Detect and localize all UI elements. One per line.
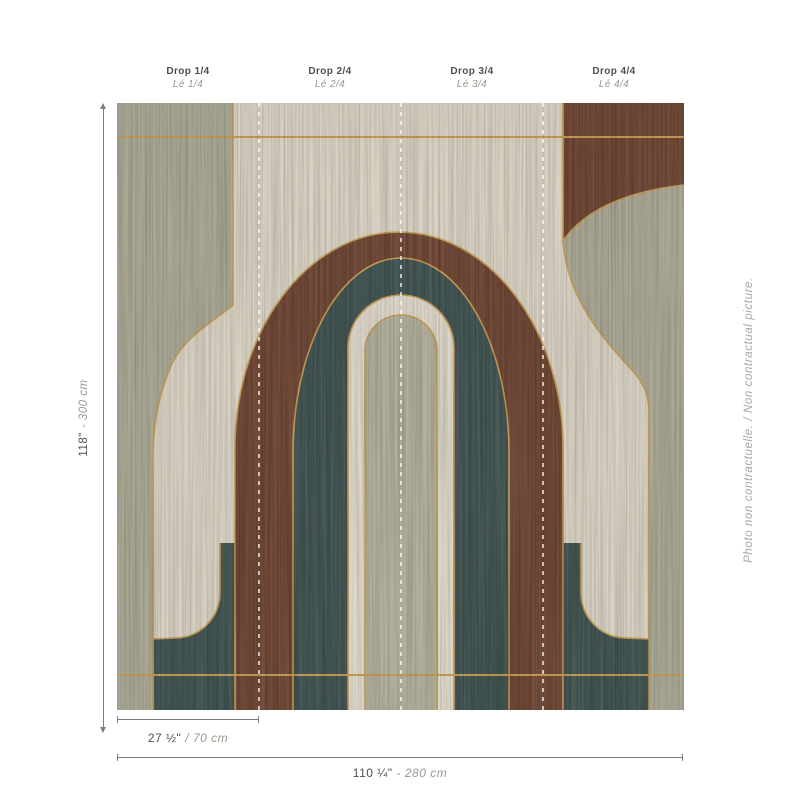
total-width-dimension-label: 110 ¼"- 280 cm: [280, 766, 520, 780]
drop-3-title: Drop 3/4: [402, 66, 542, 78]
drop-4-label: Drop 4/4 Lé 4/4: [544, 66, 684, 91]
total-width-value: 110 ¼": [353, 766, 393, 780]
product-dimension-diagram: Drop 1/4 Lé 1/4 Drop 2/4 Lé 2/4 Drop 3/4…: [0, 0, 800, 800]
drop-1-subtitle: Lé 1/4: [118, 79, 258, 91]
drop-width-dimension-line: [117, 719, 259, 720]
drop-width-value: 27 ½": [148, 731, 181, 745]
drop-width-dimension-label: 27 ½"/ 70 cm: [88, 731, 288, 745]
height-value: 118": [78, 432, 90, 456]
dimension-arrow-up-icon: [100, 103, 106, 109]
drop-4-subtitle: Lé 4/4: [544, 79, 684, 91]
drop-2-subtitle: Lé 2/4: [260, 79, 400, 91]
drop-1-label: Drop 1/4 Lé 1/4: [118, 66, 258, 91]
drop-4-title: Drop 4/4: [544, 66, 684, 78]
drop-3-label: Drop 3/4 Lé 3/4: [402, 66, 542, 91]
drop-1-title: Drop 1/4: [118, 66, 258, 78]
height-dimension-line: [103, 108, 104, 728]
non-contractual-watermark: Photo non contractuelle. / Non contractu…: [743, 200, 759, 640]
drop-2-label: Drop 2/4 Lé 2/4: [260, 66, 400, 91]
height-dimension-label: 118"- 300 cm: [78, 308, 94, 528]
drop-2-title: Drop 2/4: [260, 66, 400, 78]
wallpaper-mural-preview: [117, 103, 684, 710]
height-value-metric: - 300 cm: [78, 379, 90, 428]
drop-3-subtitle: Lé 3/4: [402, 79, 542, 91]
total-width-dimension-line: [117, 757, 683, 758]
total-width-value-metric: - 280 cm: [397, 766, 448, 780]
drop-width-value-metric: / 70 cm: [185, 731, 228, 745]
